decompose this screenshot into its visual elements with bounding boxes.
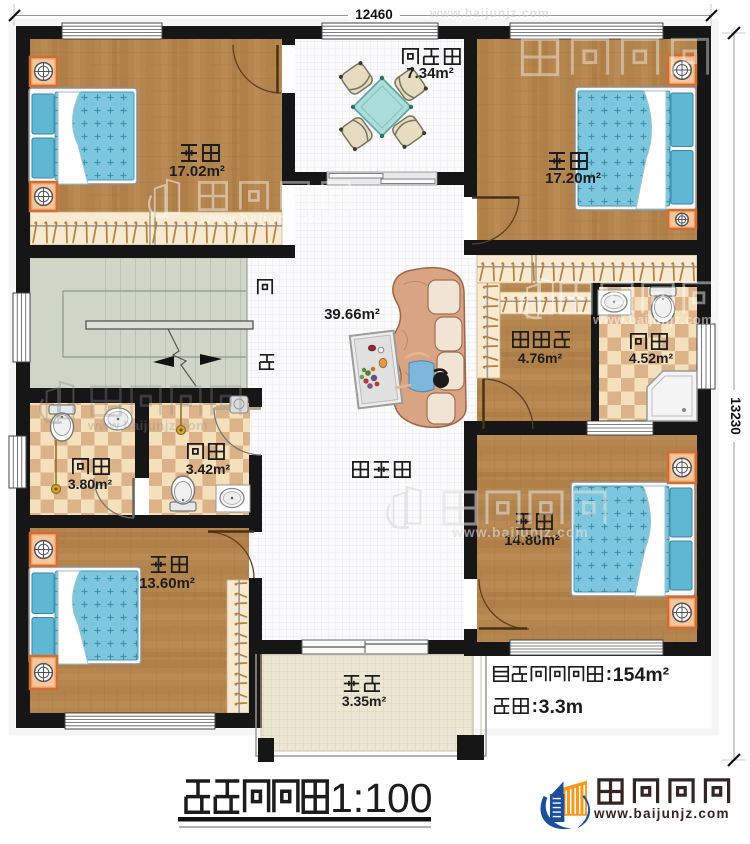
svg-text::: :: [532, 696, 538, 717]
svg-text:www.baijunjz.com: www.baijunjz.com: [592, 312, 713, 327]
svg-text:3.42m²: 3.42m²: [186, 461, 231, 477]
svg-text:3.80m²: 3.80m²: [68, 476, 113, 492]
svg-text:www.baijunjz.com: www.baijunjz.com: [87, 418, 208, 433]
svg-text:1:100: 1:100: [330, 775, 433, 821]
svg-text:17.02m²: 17.02m²: [169, 163, 225, 180]
svg-text:7.34m²: 7.34m²: [406, 65, 454, 82]
svg-text:13.60m²: 13.60m²: [139, 575, 195, 592]
svg-text:4.52m²: 4.52m²: [629, 350, 674, 366]
svg-text:www.baijunjz.com: www.baijunjz.com: [451, 524, 589, 540]
svg-text:154m²: 154m²: [613, 664, 670, 686]
svg-text:12460: 12460: [355, 7, 393, 22]
svg-text:3.3m: 3.3m: [539, 696, 583, 718]
svg-text:39.66m²: 39.66m²: [324, 306, 380, 323]
svg-text:13230: 13230: [728, 397, 743, 435]
svg-text:www.baijunjz.com: www.baijunjz.com: [199, 210, 337, 226]
svg-text:www.baijunjz.com: www.baijunjz.com: [429, 6, 550, 20]
svg-text:3.35m²: 3.35m²: [342, 693, 387, 709]
svg-text:www.baijunjz.com: www.baijunjz.com: [593, 806, 730, 821]
svg-text:4.76m²: 4.76m²: [518, 350, 563, 366]
svg-text::: :: [606, 664, 612, 685]
svg-text:17.20m²: 17.20m²: [545, 170, 601, 187]
